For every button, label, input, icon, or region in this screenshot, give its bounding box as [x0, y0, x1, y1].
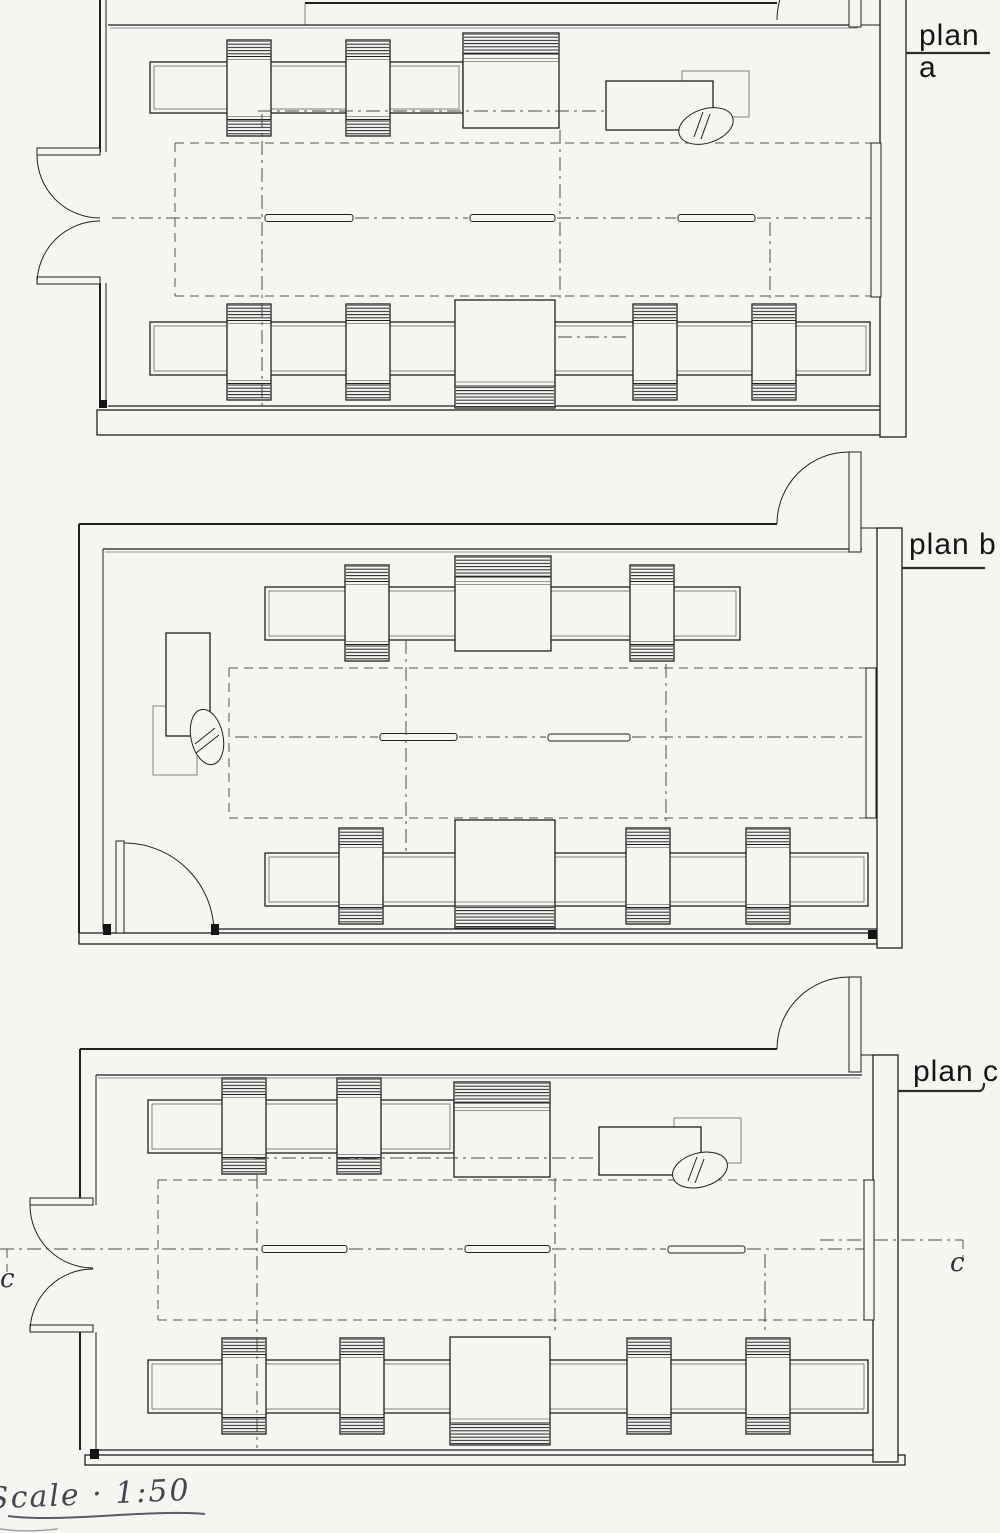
plan-b-ceiling-outline — [229, 668, 866, 818]
plan-c-section-line — [7, 1240, 963, 1272]
plan-b-drawing — [0, 450, 1000, 970]
plan-c-center-axis — [0, 1158, 868, 1448]
plan-b-teacher-desk-group — [153, 633, 228, 775]
drawing-sheet: plan a plan b plan c c c Scale · 1:50 — [0, 0, 1000, 1533]
plan-a-entry-double-door — [37, 148, 100, 284]
plan-a-radiator — [871, 143, 881, 297]
plan-b-center-axis — [235, 640, 866, 851]
plan-c-radiator — [864, 1180, 874, 1320]
plan-b-workbench-row-top — [265, 556, 740, 661]
plan-a-label: plan a — [919, 20, 1000, 84]
section-mark-right: c — [950, 1250, 965, 1276]
scale-note-underline — [0, 1513, 205, 1531]
plan-a-teacher-desk-group — [606, 71, 749, 151]
plan-c-workbench-row-top — [148, 1078, 550, 1177]
plan-b-top-right-door — [777, 452, 861, 552]
plan-b-radiator — [866, 668, 876, 818]
plan-a-workbench-row-top — [150, 33, 559, 136]
plan-c-drawing — [0, 970, 1000, 1533]
plan-b-bottom-left-door — [116, 841, 214, 933]
section-mark-left: c — [0, 1266, 15, 1292]
plan-a-top-right-door — [777, 0, 861, 27]
plan-c-top-right-door — [777, 977, 861, 1072]
plan-c-label: plan c — [913, 1056, 999, 1088]
plan-b-label: plan b — [909, 529, 997, 561]
plan-c-teacher-desk-group — [599, 1118, 741, 1194]
plan-b-workbench-row-bottom — [265, 820, 868, 928]
plan-a-drawing — [0, 0, 1000, 450]
plan-c-entry-double-door — [30, 1198, 93, 1332]
plan-a-workbench-row-bottom — [150, 300, 870, 408]
plan-c-workbench-row-bottom — [148, 1337, 868, 1445]
